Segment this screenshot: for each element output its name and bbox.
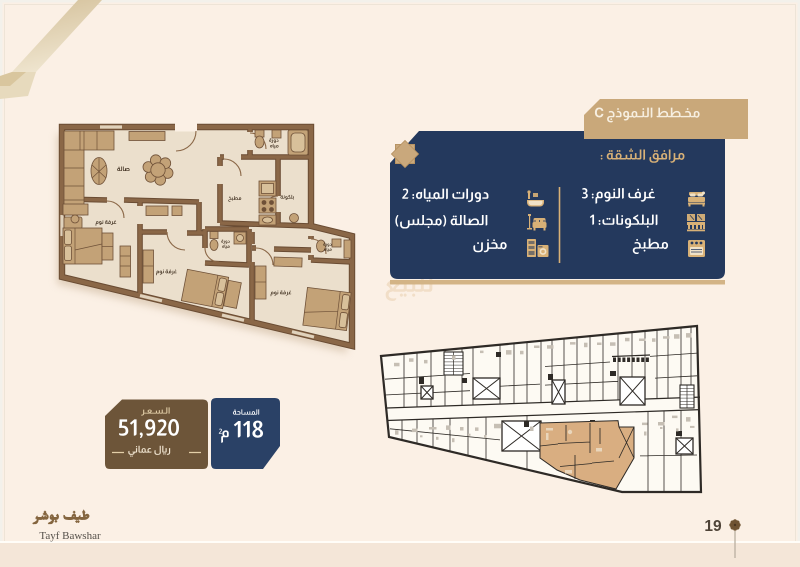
svg-text:Tayf Bawshar: Tayf Bawshar — [39, 530, 101, 542]
svg-text:19: 19 — [704, 518, 722, 535]
